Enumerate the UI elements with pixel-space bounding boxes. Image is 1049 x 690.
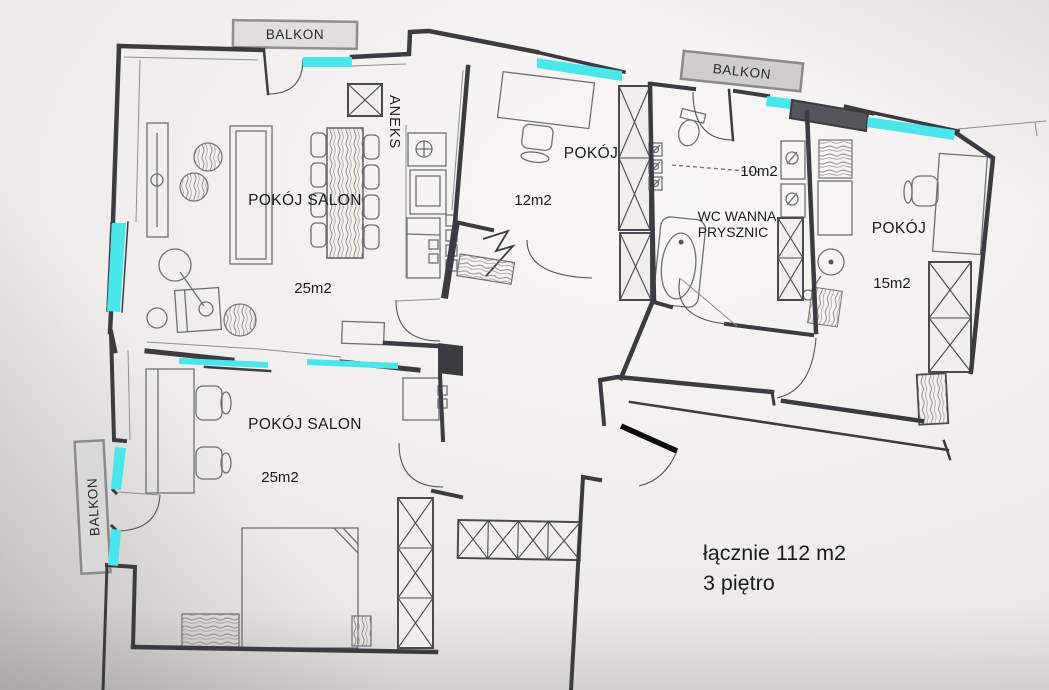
closet-room12 [619, 86, 650, 230]
label-bathroom-area: 10m2 [740, 163, 778, 180]
label-salon-bottom: POKÓJ SALON [248, 416, 362, 433]
window-partition-2 [307, 359, 398, 369]
door-arcs [118, 59, 816, 531]
balcony-left: BALKON [75, 440, 111, 573]
nightstand-wood [352, 616, 371, 646]
label-salon-top-area: 25m2 [294, 280, 332, 297]
label-room15: POKÓJ [872, 220, 927, 237]
balcony-top-left: BALKON [233, 20, 357, 49]
closet-salon-bottom [398, 498, 433, 648]
desk-room15 [933, 153, 988, 254]
label-bathroom-2: PRYSZNIC [698, 224, 769, 240]
label-total-area: łącznie 112 m2 [703, 541, 846, 565]
window-salon2-left-1 [111, 447, 126, 490]
window-salon-top [303, 57, 352, 67]
floor-plan-drawing: BALKON BALKON BALKON [0, 0, 1049, 690]
toilet [674, 109, 706, 149]
closet-bathroom [778, 218, 803, 300]
bench-wood [182, 614, 239, 647]
hall-table [342, 321, 385, 344]
floor-plan-photo: BALKON BALKON BALKON [0, 0, 1049, 690]
window-salon2-left-2 [108, 529, 121, 566]
label-salon-top: POKÓJ SALON [248, 192, 362, 209]
side-table [147, 308, 167, 328]
rug-circle [194, 143, 222, 171]
armchair [175, 288, 222, 333]
label-aneks: ANEKS [386, 95, 402, 149]
kitchen-counter [406, 125, 446, 278]
label-room15-area: 15m2 [873, 275, 911, 292]
label-bathroom-1: WC WANNA [698, 208, 777, 224]
balcony-top-right: BALKON [681, 51, 803, 91]
window-bathroom [766, 96, 791, 109]
balcony-top-left-label: BALKON [266, 27, 324, 42]
bed [242, 528, 358, 648]
rug-circle [180, 173, 208, 201]
desk-salon2 [146, 369, 231, 493]
closet-hall [620, 233, 651, 300]
closet-salon-top [348, 84, 382, 116]
label-room12-area: 12m2 [514, 192, 552, 209]
plant [224, 304, 256, 336]
closet-entry-strip [458, 520, 581, 560]
chair-room15 [904, 176, 938, 206]
label-salon-bottom-area: 25m2 [261, 469, 299, 486]
label-floor: 3 piętro [703, 571, 775, 595]
tv-sideboard [147, 123, 168, 237]
hall-bench [457, 254, 515, 284]
label-room12: POKÓJ [564, 145, 619, 162]
washbasin [781, 141, 805, 217]
balcony-left-label: BALKON [84, 477, 102, 536]
closet-room15 [917, 262, 971, 425]
